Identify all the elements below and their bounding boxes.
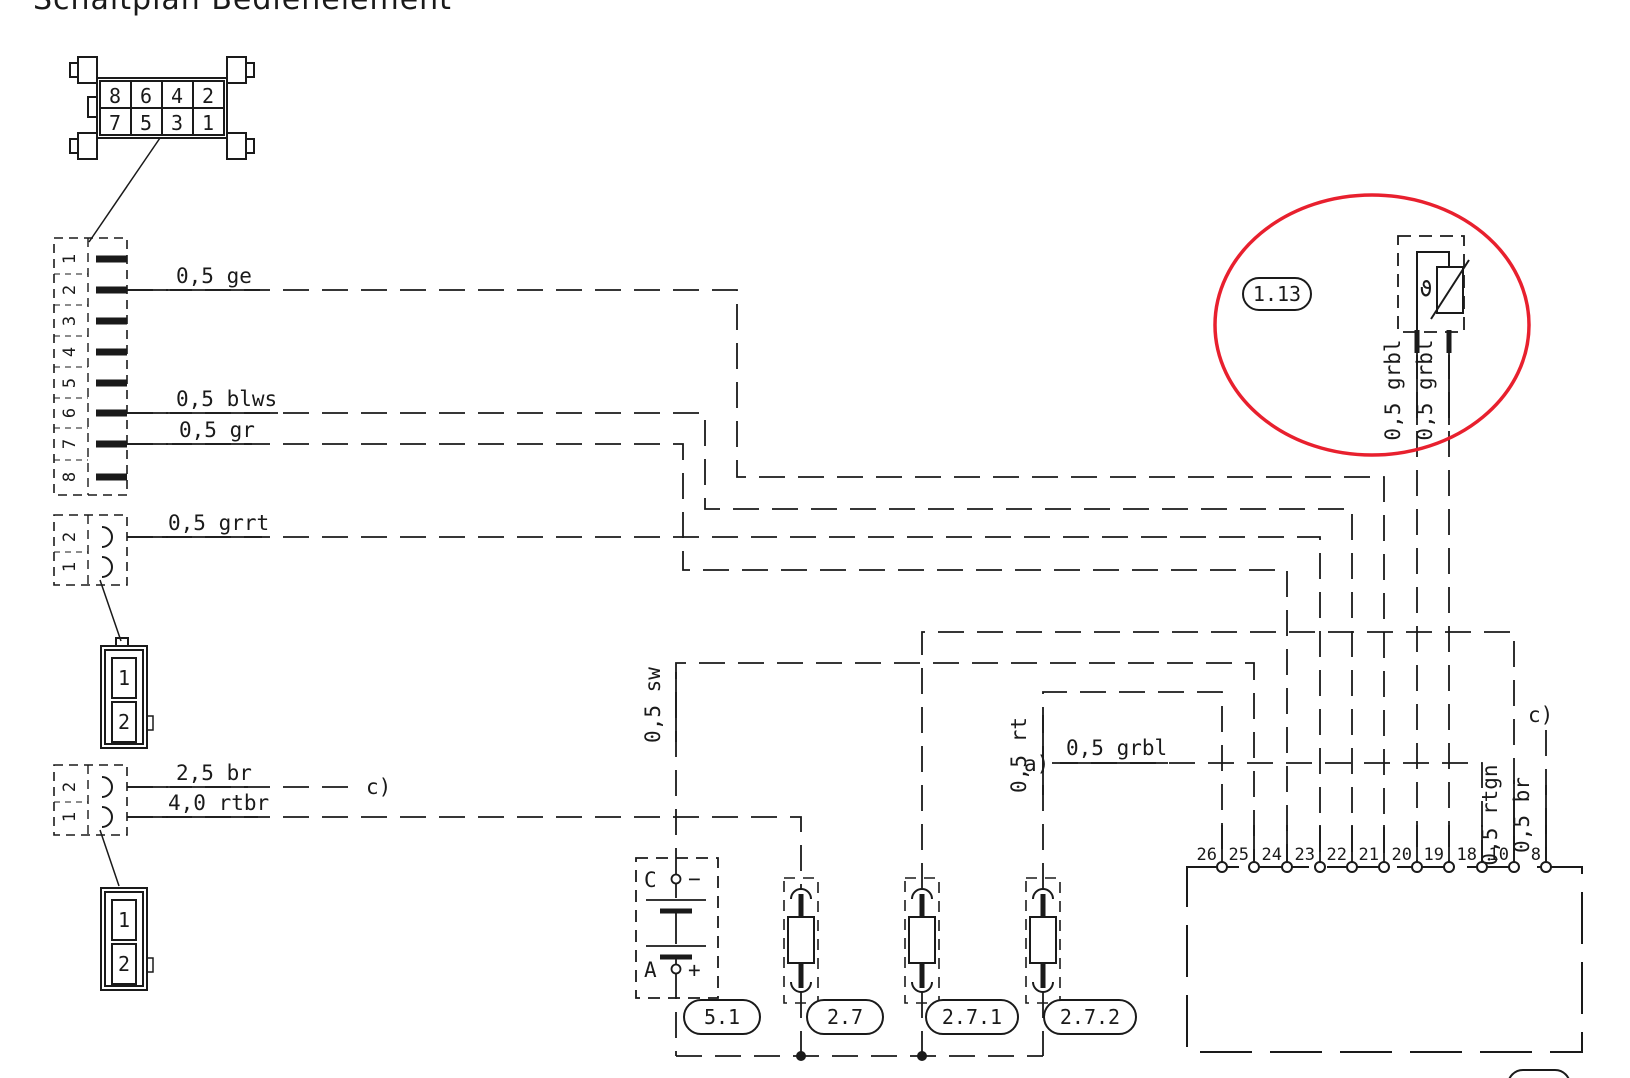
wire-blws xyxy=(127,413,1352,862)
component-id: 2.7.1 xyxy=(942,1005,1002,1029)
ecu-pin-label: 23 xyxy=(1295,845,1315,865)
wire-label-grrt: 0,5 grrt xyxy=(168,511,269,535)
contact-socket xyxy=(102,777,112,797)
theta-symbol: ϑ xyxy=(1420,277,1433,301)
pin-label: 6 xyxy=(60,408,80,418)
ecu-pin-label: 10 xyxy=(1489,845,1509,865)
ecu-pin-label: 20 xyxy=(1392,845,1412,865)
pin-label: 4 xyxy=(60,347,80,357)
pin-label: 3 xyxy=(60,316,80,326)
wire-grrt xyxy=(127,537,1320,862)
ecu-pin-label: 22 xyxy=(1327,845,1347,865)
battery-terminal-c-label: C xyxy=(644,868,657,892)
ecu-pin-label: 25 xyxy=(1229,845,1249,865)
component-sensor-1-13 xyxy=(1398,236,1469,353)
wire-sw xyxy=(676,663,1254,874)
plug-cell: 5 xyxy=(140,111,152,135)
ref-c-right: c) xyxy=(1528,703,1553,727)
connector-c xyxy=(54,765,127,835)
contact-socket xyxy=(102,807,112,827)
leader-line-plug-b xyxy=(100,580,121,641)
plug-tab-left-mid xyxy=(88,97,97,117)
pin-label: 7 xyxy=(60,439,80,449)
plug-cell: 1 xyxy=(118,666,130,690)
connector-b xyxy=(54,515,127,585)
wire-gr xyxy=(127,444,1287,862)
plug-latch-bottom-right xyxy=(246,139,254,153)
component-id: 2.7 xyxy=(827,1005,863,1029)
plug-cell: 2 xyxy=(118,710,130,734)
connector-a-pin-bars xyxy=(96,259,127,477)
connector-a-pin-labels: 1 2 3 4 5 6 7 8 xyxy=(60,254,80,482)
ecu-pin-label: 18 xyxy=(1457,845,1477,865)
battery-terminal-plus: + xyxy=(688,958,701,982)
page-title: Schaltplan Bedienelement xyxy=(33,0,452,17)
ecu-pin-label: 19 xyxy=(1424,845,1444,865)
wire-labels-rotated: 0,5 sw 0,5 rt 0,5 grbl 0,5 grbl 0,5 rtgn… xyxy=(641,339,1534,865)
contact-socket xyxy=(102,527,112,547)
plug-cell: 3 xyxy=(171,111,183,135)
plug-latch-top-right xyxy=(246,63,254,77)
plug-latch-bottom-left xyxy=(70,139,78,153)
bus-junction-dot xyxy=(796,1051,806,1061)
schematic-page: Schaltplan Bedienelement 8 6 4 2 7 5 3 1 xyxy=(0,0,1630,1078)
pill-partial-bottom xyxy=(1508,1070,1570,1078)
plug-ear-bottom-left xyxy=(78,133,97,159)
plug-ear-bottom-right xyxy=(227,133,246,159)
wire-label-grbl-s2: 0,5 grbl xyxy=(1413,339,1437,440)
wire-label-grbl-a: 0,5 grbl xyxy=(1066,736,1167,760)
bus-junction-dot xyxy=(917,1051,927,1061)
top-plug-housing xyxy=(70,57,254,159)
pin-label: 2 xyxy=(60,782,80,792)
ecu-box xyxy=(1187,867,1582,1052)
pin-label: 5 xyxy=(60,378,80,388)
wire-label-ge: 0,5 ge xyxy=(176,264,252,288)
leader-line-plug-c xyxy=(100,830,119,886)
plug-cell: 4 xyxy=(171,84,183,108)
plug-latch-top-left xyxy=(70,63,78,77)
contact-socket xyxy=(102,557,112,577)
wire-label-grbl-s1: 0,5 grbl xyxy=(1381,339,1405,440)
wire-label-br25: 2,5 br xyxy=(176,761,252,785)
plug-cell: 2 xyxy=(202,84,214,108)
wire-label-blws: 0,5 blws xyxy=(176,387,277,411)
wire-rt xyxy=(1043,692,1222,889)
wire-label-br05: 0,5 br xyxy=(1510,777,1534,853)
component-id: 2.7.2 xyxy=(1060,1005,1120,1029)
wire-label-gr: 0,5 gr xyxy=(179,418,255,442)
terminal-c xyxy=(672,875,681,884)
wire-label-rt: 0,5 rt xyxy=(1007,717,1031,793)
ecu-pin-label: 21 xyxy=(1359,845,1379,865)
component-pills xyxy=(684,1000,1570,1078)
ecu-pin-label: 26 xyxy=(1197,845,1217,865)
component-id: 1.13 xyxy=(1253,282,1301,306)
component-lamp-2-7-1 xyxy=(905,878,939,1003)
wire-labels: 0,5 ge 0,5 blws 0,5 gr 0,5 grrt 2,5 br 4… xyxy=(168,264,1553,815)
wiring-diagram: Schaltplan Bedienelement 8 6 4 2 7 5 3 1 xyxy=(0,0,1630,1078)
plug-cell: 8 xyxy=(109,84,121,108)
leader-line-plug-a xyxy=(89,138,160,242)
connector-a xyxy=(54,238,127,495)
ecu-pin-label: 24 xyxy=(1262,845,1282,865)
pin-label: 8 xyxy=(60,472,80,482)
wire-label-rtbr: 4,0 rtbr xyxy=(168,791,269,815)
plug-cell: 1 xyxy=(118,908,130,932)
plug-ear-top-left xyxy=(78,57,97,83)
wire-solid-segments xyxy=(127,290,1546,862)
pin-label: 1 xyxy=(60,254,80,264)
ref-c-left: c) xyxy=(366,775,391,799)
plug-cell: 7 xyxy=(109,111,121,135)
wire-label-sw: 0,5 sw xyxy=(641,667,665,743)
pin-label: 1 xyxy=(60,562,80,572)
highlight-ellipse xyxy=(1215,195,1529,455)
battery-terminal-minus: − xyxy=(688,867,701,891)
ecu-pin-label: 8 xyxy=(1531,845,1541,865)
battery-terminal-a-label: A xyxy=(644,958,657,982)
pin-label: 2 xyxy=(60,532,80,542)
plug-cell: 1 xyxy=(202,111,214,135)
component-lamp-2-7 xyxy=(784,878,818,1003)
plug-cell: 6 xyxy=(140,84,152,108)
terminal-a xyxy=(672,965,681,974)
pin-label: 1 xyxy=(60,812,80,822)
pin-label: 2 xyxy=(60,285,80,295)
plug-cell: 2 xyxy=(118,952,130,976)
ecu-pin-labels: 26 25 24 23 22 21 20 19 18 10 8 xyxy=(1197,845,1541,865)
component-lamp-2-7-2 xyxy=(1026,878,1060,1003)
component-id: 5.1 xyxy=(704,1005,740,1029)
plug-ear-top-right xyxy=(227,57,246,83)
wire-ge xyxy=(127,290,1384,862)
